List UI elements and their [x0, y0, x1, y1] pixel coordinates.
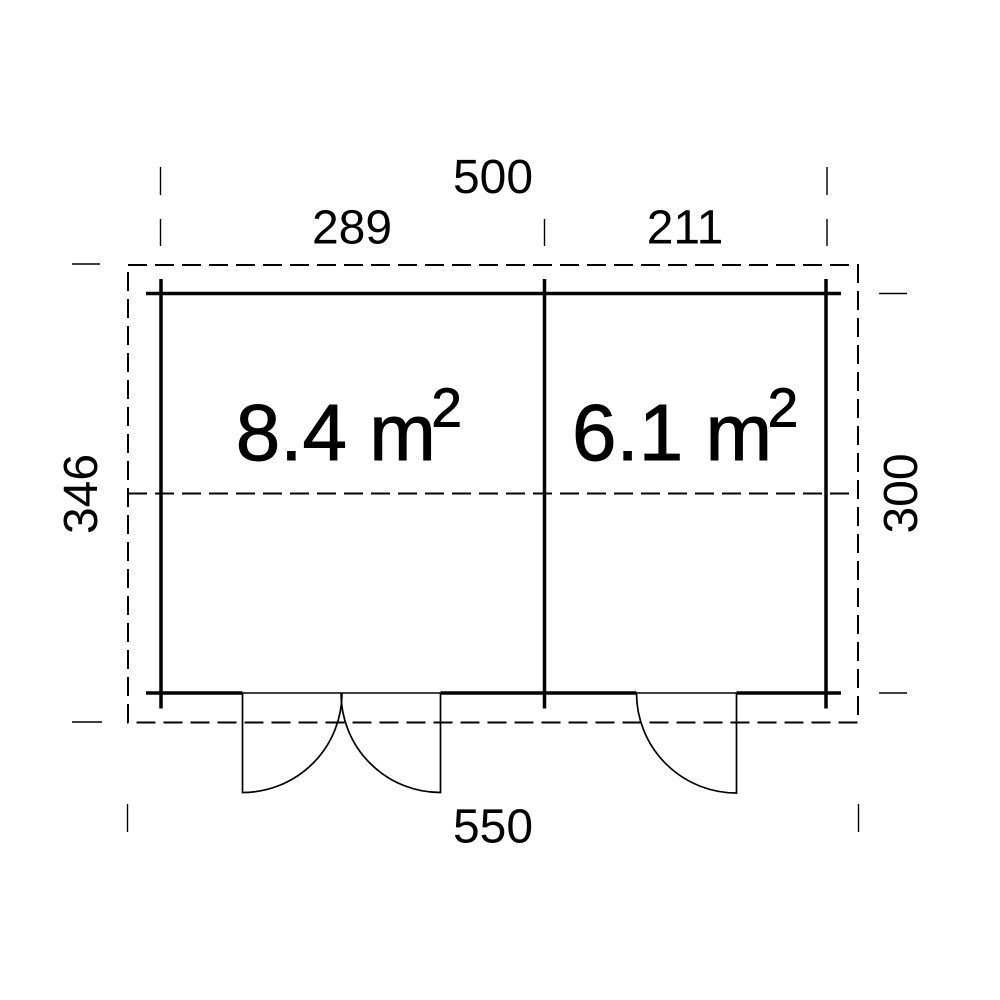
- svg-text:300: 300: [875, 453, 928, 533]
- svg-text:8.4 m2: 8.4 m2: [236, 377, 462, 478]
- svg-text:289: 289: [312, 202, 392, 255]
- svg-text:550: 550: [453, 801, 533, 854]
- svg-text:346: 346: [55, 454, 108, 534]
- svg-text:211: 211: [647, 202, 724, 255]
- svg-text:6.1 m2: 6.1 m2: [572, 377, 798, 478]
- svg-text:500: 500: [453, 151, 533, 204]
